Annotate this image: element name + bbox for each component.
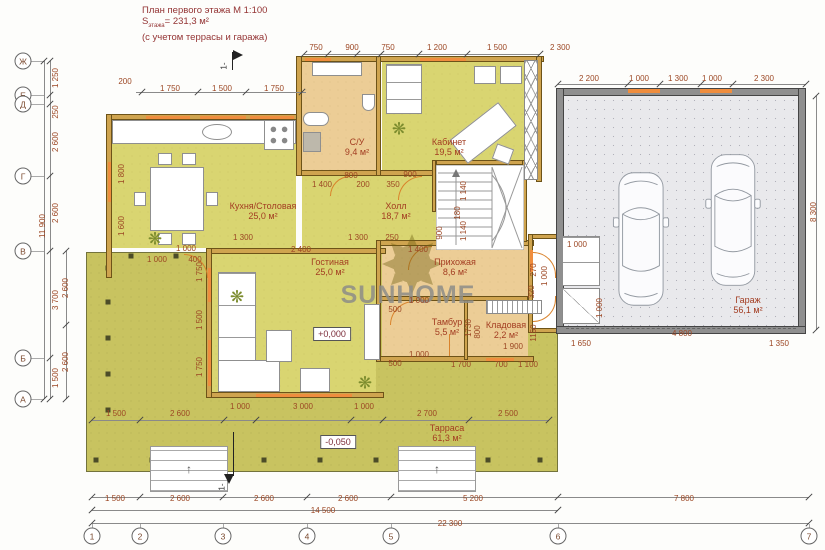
dimension-rail [92,497,809,498]
dim-label: 900 [403,171,416,179]
dim-label: 2 400 [291,246,311,254]
room-area: 61,3 м² [430,433,465,443]
dim-label: 500 [388,306,401,314]
staircase [436,165,524,250]
dim-label: 1 500 [105,495,125,503]
terrace-post [174,254,179,259]
room-label: Гараж56,1 м² [733,295,762,315]
window-marker [256,394,352,397]
axis-bubble: Г [15,168,32,185]
window-marker [146,116,190,119]
dim-label: 1 650 [571,340,591,348]
elevation-badge: +0,000 [313,327,351,341]
wall-segment [296,56,302,176]
section-marker-icon [233,432,234,476]
room-area: 19,5 м² [432,147,466,157]
dim-label: 1 300 [668,75,688,83]
dim-label: 1 400 [312,181,332,189]
axis-bubble: 3 [215,528,232,545]
room-label: Кабинет19,5 м² [432,137,466,157]
section-marker-icon [233,50,243,60]
section-label: 1- [220,62,229,69]
dim-label: 750 [381,44,394,52]
dim-label: 2 600 [170,495,190,503]
garage-door-marker [700,89,732,93]
dim-label: 800 [474,325,482,338]
axis-bubble: 6 [550,528,567,545]
room-area: 2,2 м² [486,330,526,340]
dim-label: 250 [52,105,60,118]
dimension-tick [46,395,53,402]
room-label: Прихожая8,6 м² [434,257,476,277]
dim-label: 4 800 [672,330,692,338]
title-line3: (с учетом террасы и гаража) [142,32,267,43]
axis-bubble: Б [15,350,32,367]
dim-label: 2 200 [579,75,599,83]
dim-label: 2 600 [170,410,190,418]
dim-label: 1 000 [629,75,649,83]
dim-label: 320 [528,285,536,298]
dim-label: 2 300 [550,44,570,52]
axis-leader-line [31,251,44,252]
window-marker [305,58,331,61]
room-area: 25,0 м² [311,267,349,277]
axis-bubble: 2 [132,528,149,545]
room-name: Холл [381,201,410,211]
plant-icon: ❋ [358,375,372,392]
armchair [300,368,330,392]
floor-plan-canvas: План первого этажа М 1:100 Sэтажа= 231,3… [0,0,825,550]
room-name: Гараж [733,295,762,305]
room-area: 5,5 м² [432,327,463,337]
wash-basin [362,94,375,111]
sofa [218,272,256,368]
terrace-post [106,372,111,377]
washing-machine [303,132,321,152]
dim-label: 350 [386,181,399,189]
window-marker [108,162,111,202]
garage-wall [798,88,806,334]
room-label: Тамбур5,5 м² [432,317,463,337]
terrace-post [262,458,267,463]
terrace-post [94,458,99,463]
elevation-badge: -0,050 [320,435,356,449]
car-icon [612,170,670,308]
axis-bubble: А [15,391,32,408]
dim-label: 14 500 [311,507,335,515]
dim-label: 1 800 [118,164,126,184]
dim-label: 2 600 [52,203,60,223]
dim-label: 2 600 [62,278,70,298]
monitor [500,66,522,84]
dim-label: 2 500 [498,410,518,418]
dim-label: 1 350 [769,340,789,348]
axis-bubble: В [15,243,32,260]
sofa [218,360,280,392]
dim-label: 1 000 [596,298,604,318]
plant-icon: ❋ [230,289,244,306]
dimension-rail [92,420,549,421]
axis-bubble: 5 [383,528,400,545]
dim-label: 1 000 [409,351,429,359]
room-name: Тарраса [430,423,465,433]
dim-label: 1 140 [460,221,468,241]
dim-label: 1 300 [348,234,368,242]
room-area: 9,4 м² [345,147,369,157]
dim-label: 1 750 [264,85,284,93]
axis-bubble: Ж [15,53,32,70]
plant-icon: ❋ [392,121,406,138]
window-marker [200,116,246,119]
dimension-rail [558,84,806,85]
dim-label: 1 500 [196,310,204,330]
dim-label: 700 [494,361,507,369]
dim-label: 2 300 [754,75,774,83]
window-marker [208,340,211,386]
dimension-tick [802,80,809,87]
dim-label: 1 500 [106,410,126,418]
dim-label: 2 600 [254,495,274,503]
room-label: Кладовая2,2 м² [486,320,526,340]
room-label: Кухня/Столовая25,0 м² [230,201,297,221]
terrace-post [106,336,111,341]
drawing-title: План первого этажа М 1:100 Sэтажа= 231,3… [142,5,267,43]
room-name: Гостиная [311,257,349,267]
dim-label: 1 750 [160,85,180,93]
shaft-hatch [524,60,538,180]
axis-leader-line [31,104,44,105]
stair-arrow-icon: ↑ [434,462,440,476]
garage-door-marker [628,89,660,93]
room-name: Кабинет [432,137,466,147]
dim-label: 1 750 [196,262,204,282]
title-line2: Sэтажа= 231,3 м² [142,16,267,32]
shelf [312,62,362,76]
dim-label: 270 [530,263,538,276]
terrace-post [106,300,111,305]
terrace-stair: ↑ [150,446,228,492]
room-name: Кладовая [486,320,526,330]
room-label: С/У9,4 м² [345,137,369,157]
axis-leader-line [31,176,44,177]
window-marker [208,268,211,302]
dim-label: 3 700 [52,290,60,310]
room-name: С/У [345,137,369,147]
axis-bubble: 4 [299,528,316,545]
window-marker [250,116,294,119]
terrace-stair: ↑ [398,446,476,492]
chair [206,192,218,206]
axis-bubble: Д [15,96,32,113]
coffee-table [266,330,292,362]
room-area: 25,0 м² [230,211,297,221]
dim-label: 900 [436,226,444,239]
dim-label: 1 250 [52,68,60,88]
tv-stand [364,304,380,360]
chair [182,153,196,165]
dim-label: 1 500 [212,85,232,93]
dim-label: 1 700 [451,361,471,369]
kitchen-sink [202,124,232,140]
room-area: 56,1 м² [733,305,762,315]
room-label: Тарраса61,3 м² [430,423,465,443]
stair-arrow-icon: ↑ [186,462,192,476]
dimension-tick [554,506,561,513]
room-name: Тамбур [432,317,463,327]
room-label: Гостиная25,0 м² [311,257,349,277]
dim-label: 1 000 [176,245,196,253]
dim-label: 1 900 [503,343,523,351]
terrace-post [318,458,323,463]
dimension-rail [304,54,540,55]
title-line1: План первого этажа М 1:100 [142,5,267,16]
stove-icon [264,120,294,150]
dim-label: 1 140 [460,181,468,201]
dim-label: 2 600 [62,352,70,372]
dim-label: 1 000 [702,75,722,83]
axis-leader-line [31,95,44,96]
dim-label: 8 300 [810,202,818,222]
dim-label: 11 900 [39,214,47,238]
dim-label: 1 600 [118,216,126,236]
axis-leader-line [31,358,44,359]
room-label: Холл18,7 м² [381,201,410,221]
dim-label: 800 [344,172,357,180]
dim-label: 1 000 [230,403,250,411]
dim-label: 1 500 [52,368,60,388]
dim-label: 1 000 [409,297,429,305]
dim-label: 5 200 [463,495,483,503]
dim-label: 1 300 [233,234,253,242]
dim-label: 7 800 [674,495,694,503]
dim-label: 200 [118,78,131,86]
dim-label: 1 000 [541,266,549,286]
dim-label: 1150 [530,324,538,341]
dimension-tick [805,493,812,500]
monitor [474,66,496,84]
room-area: 18,7 м² [381,211,410,221]
chair [158,153,172,165]
dim-label: 22 300 [438,520,462,528]
dim-label: 750 [309,44,322,52]
dim-label: 900 [345,44,358,52]
plant-icon: ❋ [148,231,162,248]
dim-label: 500 [388,360,401,368]
section-label: 1- [218,483,227,490]
dim-label: 1 000 [567,241,587,249]
dim-label: 1 750 [196,357,204,377]
bathtub [303,112,329,126]
dim-label: 1 100 [518,361,538,369]
dim-label: 180 [454,206,462,219]
room-name: Кухня/Столовая [230,201,297,211]
chair [134,192,146,206]
dimension-tick [812,326,819,333]
axis-bubble: 1 [84,528,101,545]
wall-segment [376,56,381,176]
dining-table [150,167,204,231]
terrace-post [129,254,134,259]
dim-label: 400 [188,256,201,264]
dim-label: 1 200 [427,44,447,52]
dim-label: 200 [356,181,369,189]
dim-label: 3 000 [293,403,313,411]
terrace-post [486,458,491,463]
dim-label: 2 600 [52,132,60,152]
dim-label: 1 400 [408,246,428,254]
terrace-post [538,458,543,463]
room-area: 8,6 м² [434,267,476,277]
axis-bubble: 7 [801,528,818,545]
dim-label: 1 500 [487,44,507,52]
wardrobe [386,64,422,114]
car-icon [702,152,764,288]
dim-label: 1 000 [147,256,167,264]
terrace-post [374,458,379,463]
dim-label: 250 [385,234,398,242]
dim-label: 1 000 [354,403,374,411]
dim-label: 2 700 [417,410,437,418]
window-marker [420,58,466,61]
garage-wall [556,88,806,96]
dimension-tick [62,395,69,402]
room-name: Прихожая [434,257,476,267]
dim-label: 1730 [465,319,473,337]
dim-label: 2 600 [338,495,358,503]
